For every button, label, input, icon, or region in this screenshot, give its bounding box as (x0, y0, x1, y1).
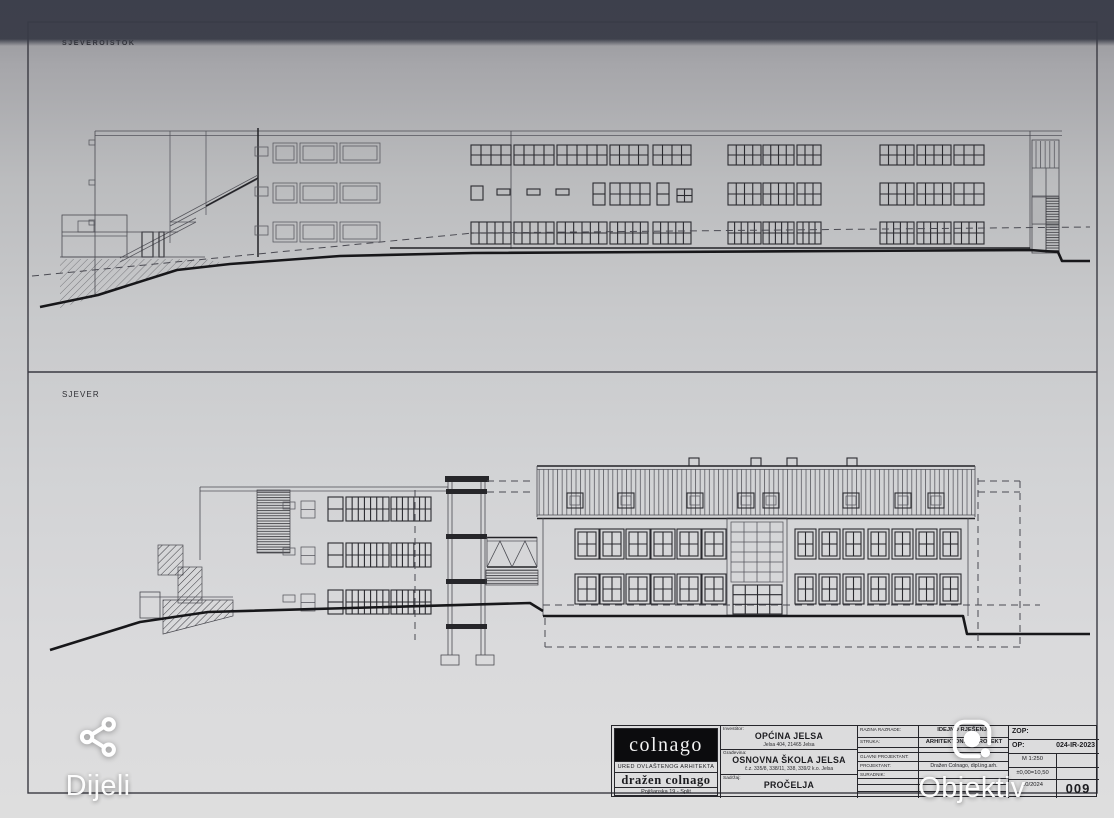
firm-architect-name: dražen colnago (615, 772, 717, 787)
project-name: OSNOVNA ŠKOLA JELSA (721, 755, 857, 765)
op-value: 024-IR-2023 (1056, 742, 1095, 753)
top-overlay-bar (0, 0, 1114, 46)
firm-logo: colnago (615, 729, 717, 761)
project-parcel: č.z. 335/8, 338/11, 338, 339/2 k.o. Jels… (721, 766, 857, 772)
lens-button[interactable]: Objektiv (898, 716, 1046, 805)
share-icon (75, 714, 121, 763)
photo-viewer-screen: SJEVEROISTOK SJEVER colnago URED OVLAŠTE… (0, 0, 1114, 818)
content-name: PROČELJA (721, 780, 857, 790)
sheet-number: 009 (1056, 779, 1099, 798)
titleblock-firm-cell: colnago URED OVLAŠTENOG ARHITEKTA dražen… (612, 726, 720, 798)
titleblock-client-cell: Investitor: OPĆINA JELSA Jelsa 404, 2146… (720, 726, 857, 749)
firm-address: Pojišanska 19 - Split (615, 787, 717, 796)
elevation-label-north: SJEVER (62, 390, 100, 399)
client-name: OPĆINA JELSA (721, 731, 857, 741)
client-address: Jelsa 404, 21465 Jelsa (721, 742, 857, 748)
project-label: Građevina: (723, 751, 746, 756)
share-button[interactable]: Dijeli (42, 714, 154, 803)
share-button-label: Dijeli (66, 770, 131, 803)
elevation-drawings (0, 0, 1114, 818)
content-label: Sadržaj: (723, 776, 741, 781)
titleblock-content-cell: Sadržaj: PROČELJA (720, 774, 857, 798)
client-label: Investitor: (723, 727, 744, 732)
firm-office-line: URED OVLAŠTENOG ARHITEKTA (615, 761, 717, 772)
titleblock-project-cell: Građevina: OSNOVNA ŠKOLA JELSA č.z. 335/… (720, 749, 857, 774)
lens-button-label: Objektiv (918, 772, 1025, 805)
lens-icon (949, 716, 995, 765)
